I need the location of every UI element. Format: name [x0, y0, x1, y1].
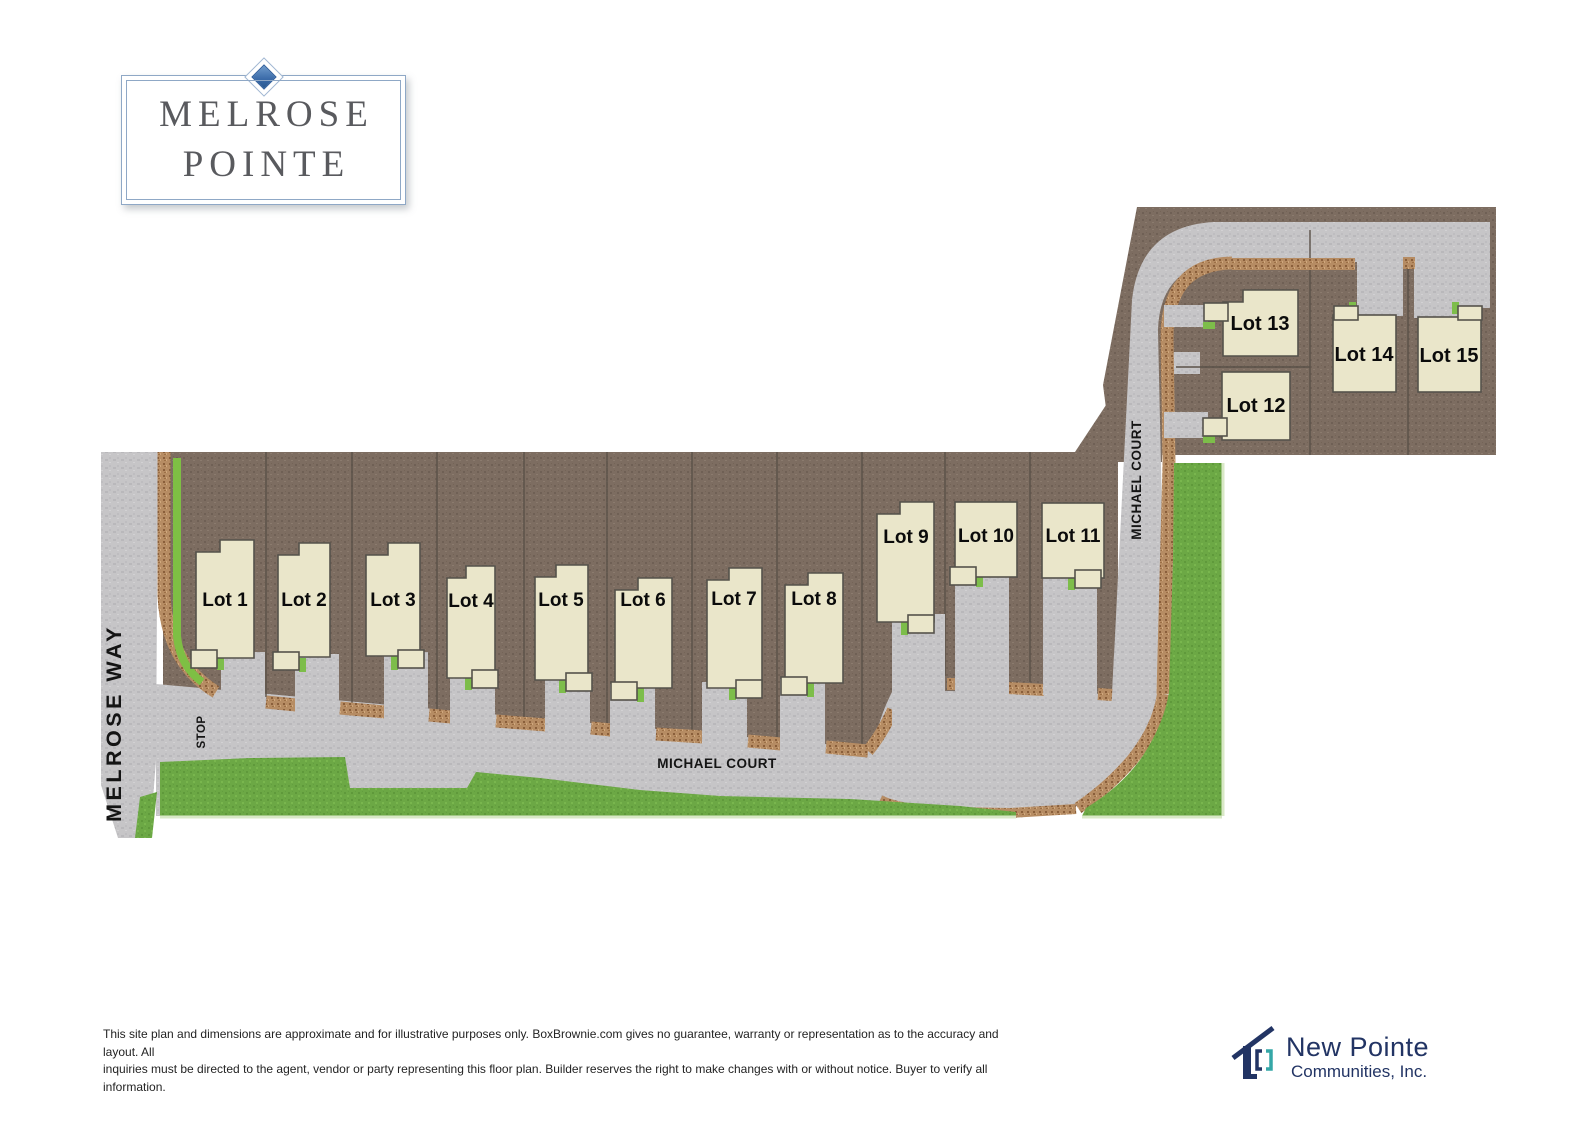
michael-court-label: MICHAEL COURT [657, 756, 777, 771]
lot-6-label: Lot 6 [620, 590, 665, 611]
lot-9-building [877, 502, 934, 633]
house-icon [1233, 1028, 1273, 1079]
lot-11-label: Lot 11 [1046, 526, 1101, 547]
lot-14-label: Lot 14 [1335, 344, 1395, 366]
brand-subname: Communities, Inc. [1291, 1062, 1427, 1081]
road-right-stub [1447, 258, 1490, 308]
lot-5-label: Lot 5 [538, 590, 584, 611]
lot-4-building [447, 566, 498, 688]
lot-3-label: Lot 3 [370, 590, 415, 611]
site-plan-page: Lot 1 Lot 2 Lot 3 Lot 4 Lot 5 Lot 6 Lot … [0, 0, 1587, 1123]
lot-9-label: Lot 9 [883, 527, 928, 548]
stop-label: STOP [196, 715, 208, 748]
lot-4-label: Lot 4 [448, 591, 494, 612]
lot-2-label: Lot 2 [281, 590, 326, 611]
lot-1-label: Lot 1 [202, 590, 248, 611]
lot-12-label: Lot 12 [1227, 395, 1286, 417]
lot-8-label: Lot 8 [791, 589, 836, 610]
lot-10-label: Lot 10 [958, 526, 1014, 547]
michael-court-vertical-label: MICHAEL COURT [1129, 420, 1144, 540]
disclaimer-line1: This site plan and dimensions are approx… [103, 1026, 1033, 1061]
brand-logo: New Pointe Communities, Inc. [1233, 1028, 1429, 1081]
logo-frame: MELROSE POINTE [126, 80, 401, 200]
lot-15-label: Lot 15 [1420, 345, 1479, 367]
lot-13-label: Lot 13 [1231, 313, 1290, 335]
lot-7-label: Lot 7 [711, 589, 756, 610]
driveway-lot14-stub [1357, 256, 1403, 316]
disclaimer-line2: inquiries must be directed to the agent,… [103, 1061, 1033, 1096]
lot-7-building [707, 568, 762, 698]
melrose-pointe-logo: MELROSE POINTE [121, 75, 406, 205]
logo-title-line2: POINTE [177, 140, 351, 190]
disclaimer-text: This site plan and dimensions are approx… [103, 1026, 1033, 1096]
logo-title-line1: MELROSE [153, 90, 374, 140]
melrose-way-label: MELROSE WAY [102, 624, 126, 822]
brand-name: New Pointe [1286, 1032, 1429, 1062]
lot-5-building [535, 565, 592, 691]
